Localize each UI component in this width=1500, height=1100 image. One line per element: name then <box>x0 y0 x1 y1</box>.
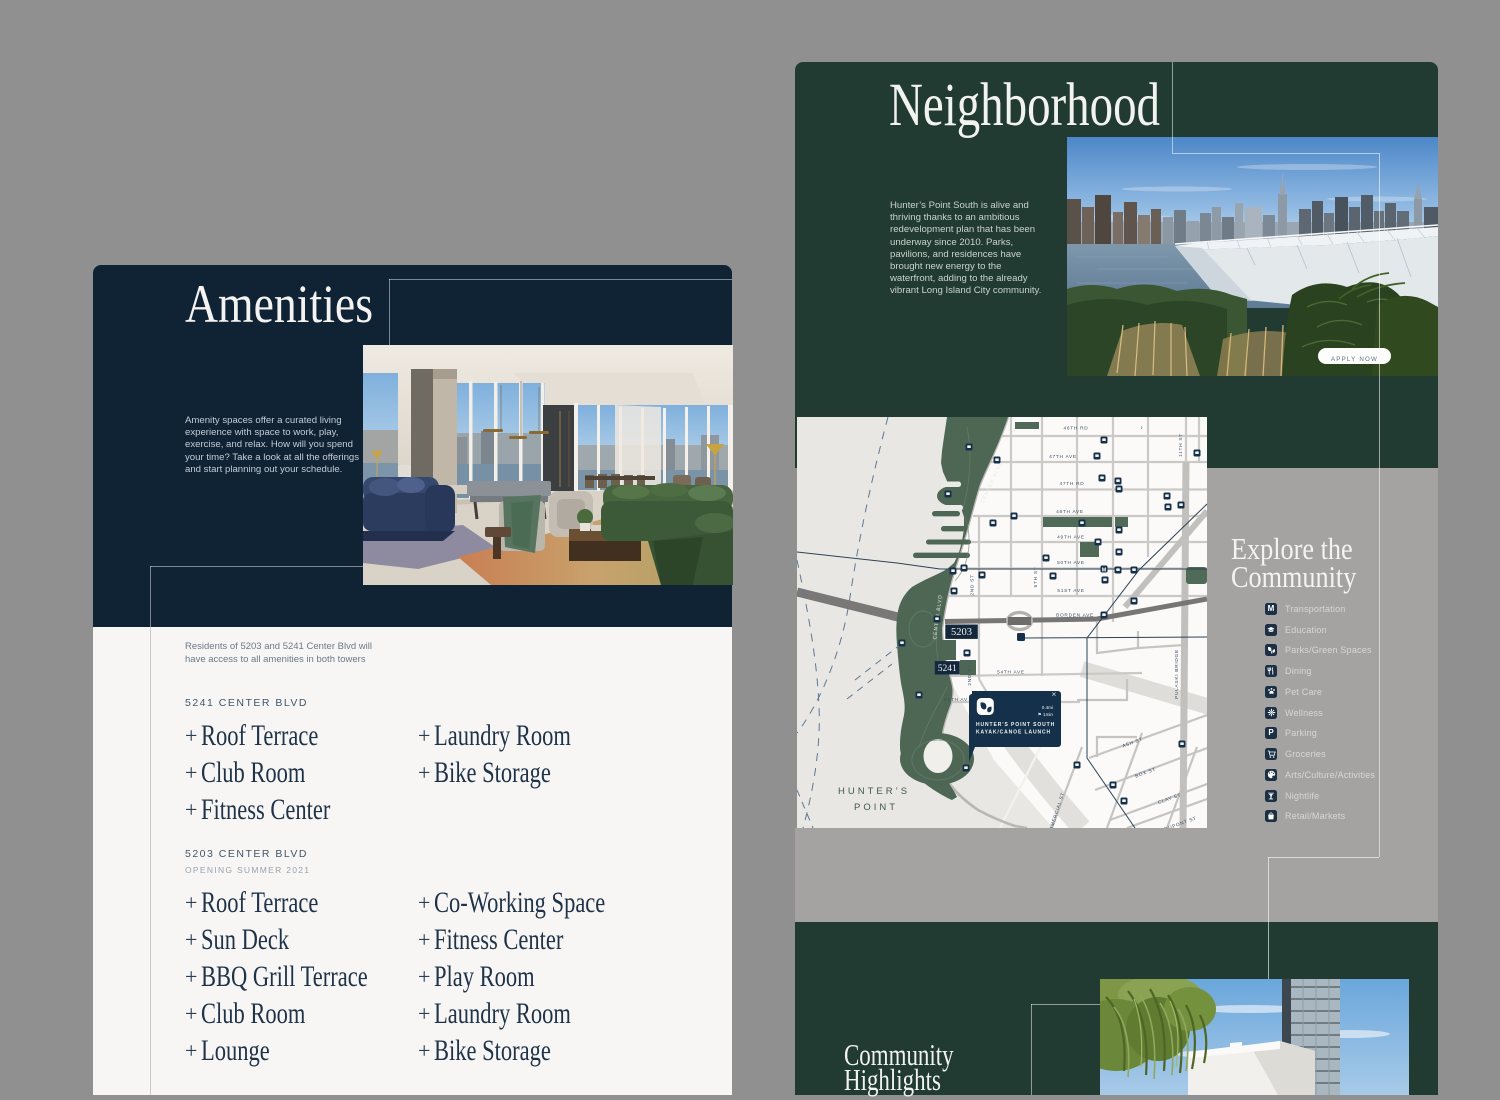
svg-text:47TH RD: 47TH RD <box>1060 481 1085 487</box>
svg-text:46TH RD: 46TH RD <box>1064 426 1089 432</box>
svg-text:51ST AVE: 51ST AVE <box>1057 588 1084 594</box>
svg-text:POINT: POINT <box>854 802 898 813</box>
svg-text:2ND ST: 2ND ST <box>970 574 976 595</box>
svg-text:5TH ST: 5TH ST <box>1033 567 1039 588</box>
svg-text:54TH AVE: 54TH AVE <box>997 670 1025 676</box>
svg-text:50TH AVE: 50TH AVE <box>1057 560 1085 566</box>
svg-text:KAYAK/CANOE LAUNCH: KAYAK/CANOE LAUNCH <box>976 729 1051 735</box>
svg-text:HUNTER’S POINT SOUTH: HUNTER’S POINT SOUTH <box>976 722 1055 728</box>
svg-text:BORDEN AVE: BORDEN AVE <box>1056 613 1094 619</box>
svg-text:M: M <box>1102 568 1107 574</box>
svg-text:✕: ✕ <box>1051 692 1056 699</box>
svg-text:2ND ST: 2ND ST <box>967 664 973 685</box>
svg-text:11TH ST: 11TH ST <box>1178 433 1184 457</box>
svg-text:5203: 5203 <box>951 627 972 638</box>
svg-text:49TH AVE: 49TH AVE <box>1057 535 1085 541</box>
svg-text:0.4mi: 0.4mi <box>1042 705 1053 710</box>
svg-text:5241: 5241 <box>938 664 957 674</box>
svg-text:55TH AV: 55TH AV <box>944 697 968 703</box>
svg-text:47TH AVE: 47TH AVE <box>1049 454 1077 460</box>
svg-text:48TH AVE: 48TH AVE <box>1056 509 1084 515</box>
svg-text:›: › <box>1141 426 1144 432</box>
svg-text:HUNTER’S: HUNTER’S <box>838 786 910 797</box>
svg-text:PULASKI BRIDGE: PULASKI BRIDGE <box>1174 649 1180 699</box>
svg-text:⚑ 1min: ⚑ 1min <box>1038 712 1054 717</box>
